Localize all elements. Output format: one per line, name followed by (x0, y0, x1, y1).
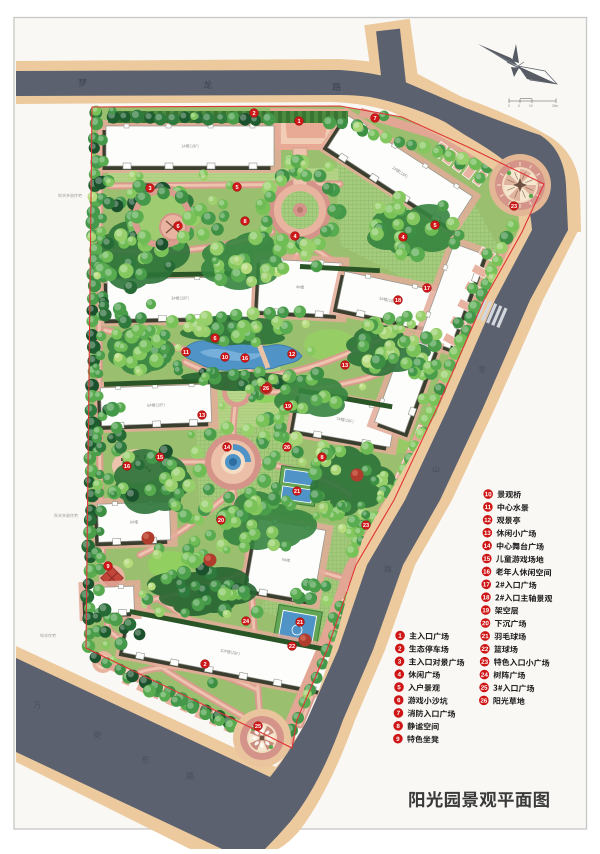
svg-text:22: 22 (289, 644, 295, 650)
svg-text:12: 12 (289, 352, 295, 358)
svg-text:11: 11 (183, 350, 189, 356)
svg-text:22: 22 (481, 646, 489, 653)
svg-text:13: 13 (342, 363, 348, 369)
svg-text:17: 17 (483, 581, 491, 588)
svg-text:5: 5 (235, 185, 238, 191)
svg-text:16: 16 (483, 569, 491, 576)
svg-text:1: 1 (297, 119, 300, 125)
svg-text:21: 21 (294, 489, 300, 495)
svg-text:6: 6 (176, 224, 179, 230)
svg-text:14: 14 (484, 543, 492, 550)
svg-text:6: 6 (213, 336, 216, 342)
svg-text:10: 10 (222, 355, 228, 361)
svg-text:18: 18 (482, 594, 490, 601)
svg-text:25: 25 (255, 724, 261, 730)
svg-text:0: 0 (508, 104, 510, 108)
svg-text:7: 7 (373, 116, 376, 122)
svg-text:8: 8 (243, 219, 246, 225)
svg-text:11: 11 (485, 504, 492, 511)
svg-text:2: 2 (252, 111, 255, 117)
svg-text:9: 9 (106, 564, 109, 570)
svg-text:21: 21 (482, 633, 490, 640)
svg-text:15: 15 (483, 556, 491, 563)
svg-text:14: 14 (224, 445, 231, 451)
svg-text:5: 5 (433, 223, 436, 229)
svg-text:26: 26 (284, 445, 290, 451)
svg-text:18: 18 (395, 298, 401, 304)
svg-text:20m: 20m (552, 104, 559, 108)
svg-text:10: 10 (529, 104, 533, 108)
svg-text:26: 26 (263, 386, 269, 392)
svg-text:17: 17 (424, 286, 430, 292)
svg-text:19: 19 (285, 404, 291, 410)
svg-text:26: 26 (480, 698, 488, 705)
svg-text:10: 10 (485, 491, 493, 498)
svg-text:23: 23 (511, 204, 517, 210)
svg-text:16: 16 (124, 464, 130, 470)
svg-text:3: 3 (148, 186, 151, 192)
svg-text:20: 20 (482, 620, 490, 627)
svg-text:23: 23 (363, 523, 369, 529)
svg-text:20: 20 (218, 518, 224, 524)
svg-text:21: 21 (297, 620, 303, 626)
svg-text:2: 2 (203, 662, 206, 668)
svg-text:12: 12 (484, 517, 492, 524)
svg-text:15: 15 (157, 455, 163, 461)
svg-text:24: 24 (481, 672, 489, 679)
svg-text:5: 5 (518, 104, 520, 108)
svg-text:8: 8 (320, 455, 323, 461)
svg-text:13: 13 (199, 413, 205, 419)
svg-text:19: 19 (482, 607, 490, 614)
svg-text:24: 24 (243, 619, 250, 625)
svg-text:13: 13 (484, 530, 492, 537)
svg-text:25: 25 (481, 685, 489, 692)
svg-text:16: 16 (242, 356, 248, 362)
svg-text:23: 23 (481, 659, 489, 666)
